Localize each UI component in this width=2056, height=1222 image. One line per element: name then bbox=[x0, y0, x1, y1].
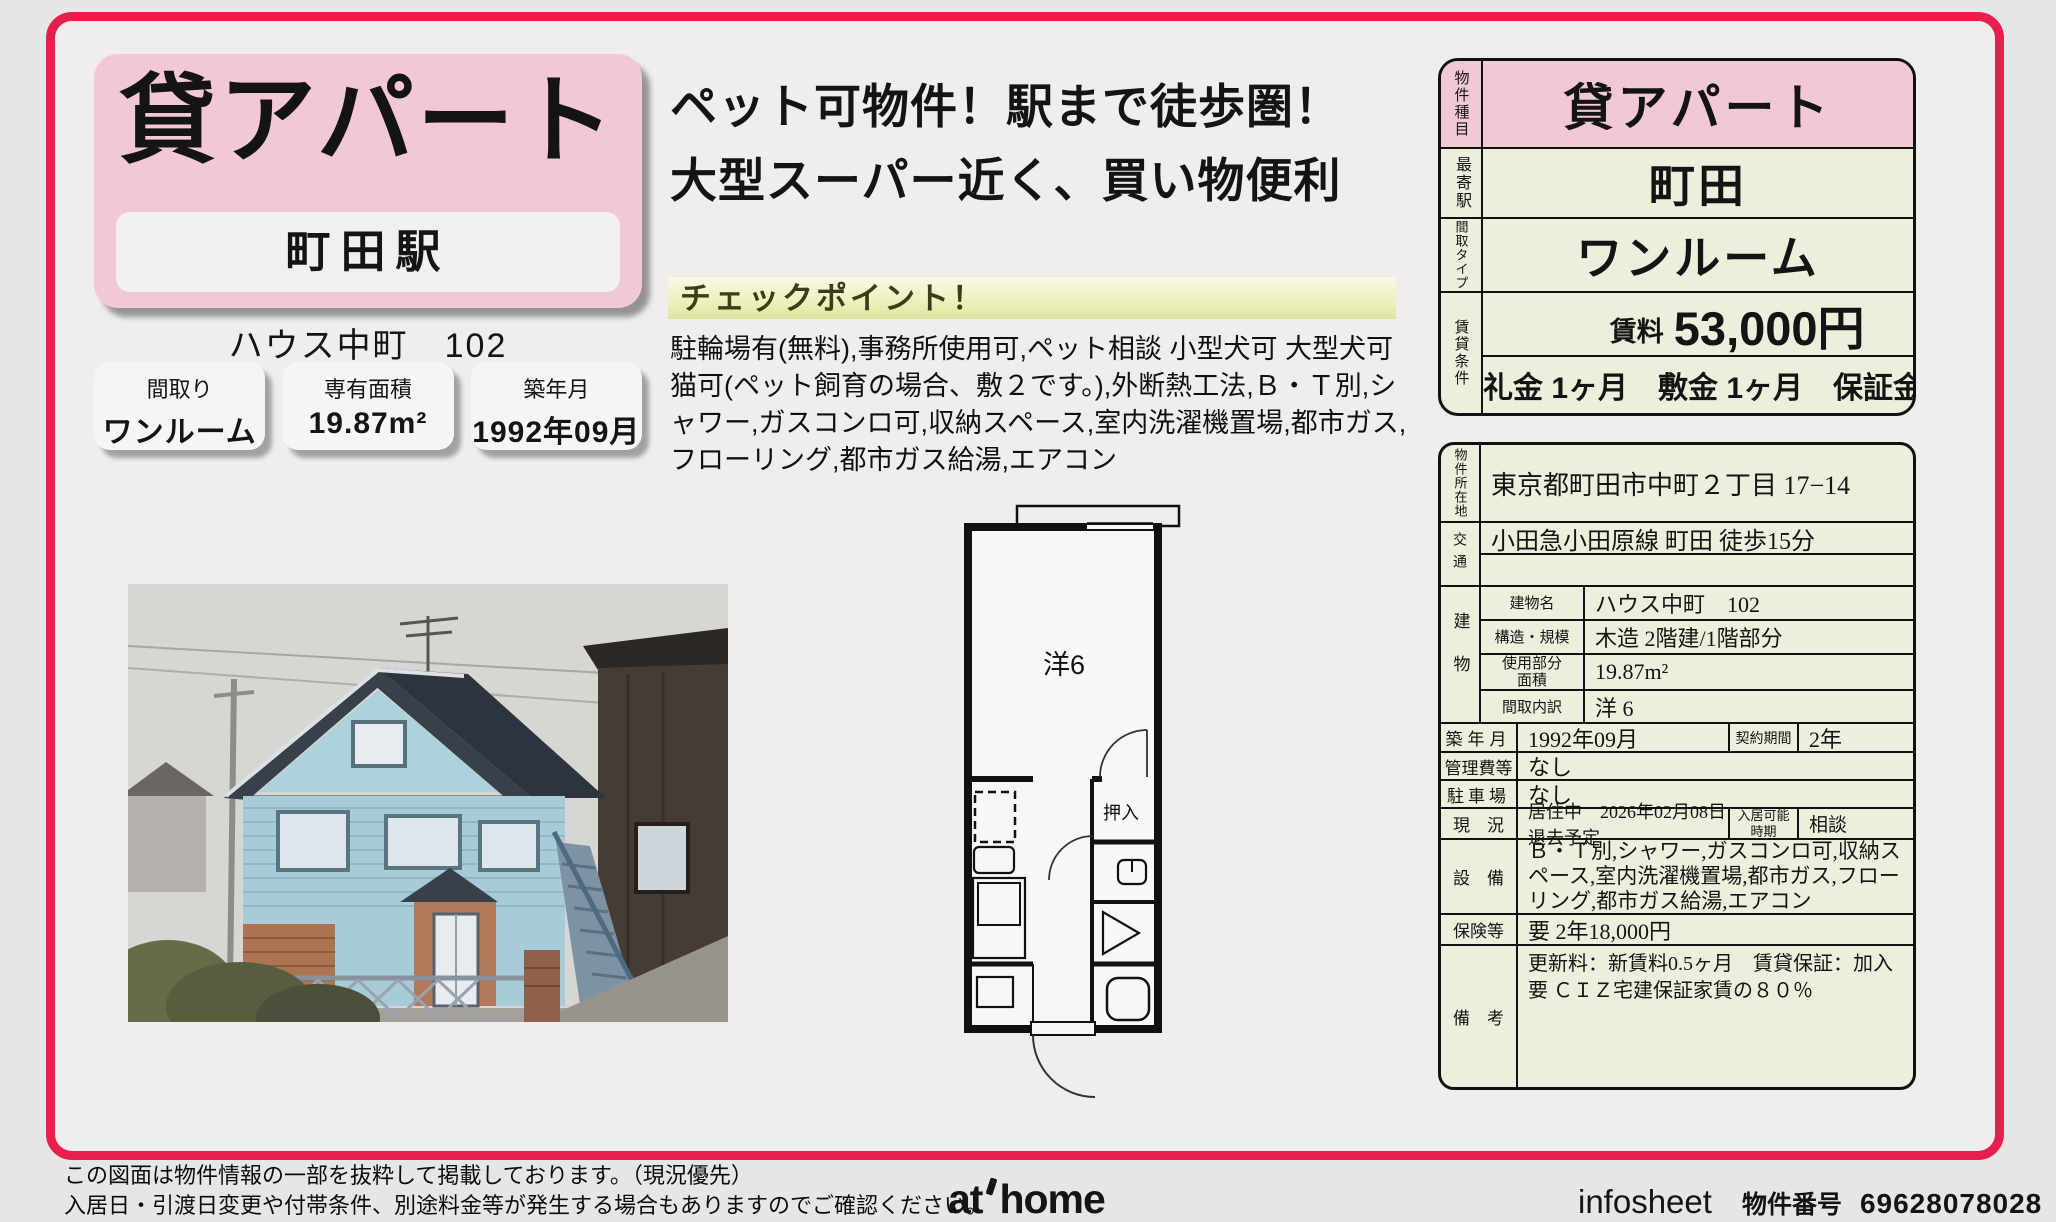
row-value: ハウス中町 102 bbox=[1585, 587, 1913, 619]
feature-description: 駐輪場有(無料),事務所使用可,ペット相談 小型犬可 大型犬可 猫可(ペット飼育… bbox=[670, 331, 1412, 479]
row-label: 物件種目 bbox=[1441, 61, 1483, 147]
row-label: 構造・規模 bbox=[1481, 621, 1585, 653]
row-property-type: 物件種目 貸アパート bbox=[1441, 61, 1913, 149]
exterior-photo bbox=[128, 584, 728, 1022]
stat-label: 間取り bbox=[94, 372, 265, 404]
row-label: 駐車場 bbox=[1441, 781, 1518, 807]
row-label: 賃貸条件 bbox=[1441, 293, 1483, 413]
contract-value: 2年 bbox=[1799, 724, 1913, 751]
athome-logo-at: at bbox=[948, 1176, 982, 1222]
property-number: 物件番号 69628078028 bbox=[1740, 1185, 2048, 1222]
catch-copy: ペット可物件！駅まで徒歩圏！ 大型スーパー近く、買い物便利 bbox=[670, 70, 1342, 218]
row-building-name: 建物名 ハウス中町 102 bbox=[1481, 587, 1913, 621]
footer-disclaimer: この図面は物件情報の一部を抜粋して掲載しております。（現況優先） 入居日・引渡日… bbox=[64, 1161, 988, 1221]
disclaimer-line-2: 入居日・引渡日変更や付帯条件、別途料金等が発生する場合もありますのでご確認くださ… bbox=[64, 1191, 988, 1221]
row-label: 建物名 bbox=[1481, 587, 1585, 619]
rent-label: 賃料 bbox=[1610, 310, 1664, 349]
row-label: 築年月 bbox=[1441, 724, 1518, 751]
row-label: 設 備 bbox=[1441, 840, 1518, 913]
stat-value: 19.87m² bbox=[282, 407, 453, 441]
status-value: 居住中 2026年02月08日退去予定 bbox=[1518, 809, 1728, 838]
row-value: 木造 2階建/1階部分 bbox=[1585, 621, 1913, 653]
contract-label: 契約期間 bbox=[1728, 724, 1799, 751]
row-structure: 構造・規模 木造 2階建/1階部分 bbox=[1481, 621, 1913, 655]
summary-table: 物件種目 貸アパート 最寄駅 町田 間取タイプ ワンルーム 賃貸条件 賃料 53… bbox=[1438, 58, 1916, 416]
row-label: 保険等 bbox=[1441, 915, 1518, 944]
property-flyer: 貸アパート 町田駅 ハウス中町 102 間取り ワンルーム 専有面積 19.87… bbox=[0, 0, 2056, 1222]
row-label: 管理費等 bbox=[1441, 753, 1518, 779]
infosheet-label: infosheet bbox=[1578, 1183, 1712, 1221]
catch-line-2: 大型スーパー近く、買い物便利 bbox=[670, 144, 1342, 218]
rent-value: 53,000円 bbox=[1674, 290, 1865, 359]
row-value: 貸アパート bbox=[1483, 61, 1913, 147]
row-label: 間取内訳 bbox=[1481, 691, 1585, 723]
row-access: 交通 小田急小田原線 町田 徒歩15分 bbox=[1441, 523, 1913, 587]
row-floor-area: 使用部分 面積 19.87m² bbox=[1481, 655, 1913, 691]
athome-logo-tick-icon bbox=[986, 1177, 998, 1195]
equipment-value: Ｂ・Ｔ別,シャワー,ガスコンロ可,収納スペース,室内洗濯機置場,都市ガス,フロー… bbox=[1518, 840, 1913, 913]
row-label: 間取タイプ bbox=[1441, 219, 1483, 291]
row-layout-detail: 間取内訳 洋 6 bbox=[1481, 691, 1913, 723]
row-current-status: 現 況 居住中 2026年02月08日退去予定 入居可能 時期 相談 bbox=[1441, 809, 1913, 840]
stat-value: 1992年09月 bbox=[471, 407, 642, 451]
row-rent-terms: 賃貸条件 賃料 53,000円 礼金 1ヶ月 敷金 1ヶ月 保証金 なし bbox=[1441, 293, 1913, 413]
property-number-label: 物件番号 bbox=[1742, 1185, 1842, 1221]
row-built-date: 築年月 1992年09月 契約期間 2年 bbox=[1441, 724, 1913, 753]
row-layout-type: 間取タイプ ワンルーム bbox=[1441, 219, 1913, 293]
stat-label: 専有面積 bbox=[282, 372, 453, 404]
row-label: 最寄駅 bbox=[1441, 149, 1483, 217]
row-building-group: 建物 建物名 ハウス中町 102 構造・規模 木造 2階建/1階部分 使用部分 … bbox=[1441, 587, 1913, 724]
stat-box-built: 築年月 1992年09月 bbox=[471, 362, 642, 450]
row-label: 交通 bbox=[1441, 523, 1481, 585]
rent-amount: 賃料 53,000円 bbox=[1483, 293, 1916, 357]
stat-value: ワンルーム bbox=[94, 407, 265, 451]
row-nearest-station: 最寄駅 町田 bbox=[1441, 149, 1913, 219]
infosheet-block: infosheet 物件番号 69628078028 bbox=[1578, 1183, 2048, 1222]
stat-label: 築年月 bbox=[471, 372, 642, 404]
building-name: ハウス中町 102 bbox=[94, 318, 642, 367]
row-location: 物件所在地 東京都町田市中町２丁目 17−14 bbox=[1441, 445, 1913, 523]
access-value: 小田急小田原線 町田 徒歩15分 bbox=[1481, 523, 1913, 555]
athome-logo-home: home bbox=[999, 1176, 1104, 1222]
disclaimer-line-1: この図面は物件情報の一部を抜粋して掲載しております。（現況優先） bbox=[64, 1161, 988, 1191]
movein-value: 相談 bbox=[1799, 809, 1913, 838]
row-management-fee: 管理費等 なし bbox=[1441, 753, 1913, 781]
deposit-terms: 礼金 1ヶ月 敷金 1ヶ月 保証金 なし bbox=[1483, 357, 1916, 413]
row-label: 現 況 bbox=[1441, 809, 1518, 838]
location-value: 東京都町田市中町２丁目 17−14 bbox=[1481, 445, 1913, 521]
floorplan-room-label: 洋6 bbox=[1043, 650, 1085, 680]
row-value: 町田 bbox=[1483, 149, 1913, 217]
movein-label: 入居可能 時期 bbox=[1728, 809, 1799, 838]
insurance-value: 要 2年18,000円 bbox=[1518, 915, 1913, 944]
property-type-title: 貸アパート bbox=[94, 54, 642, 175]
fee-value: なし bbox=[1518, 753, 1913, 779]
notes-value: 更新料：新賃料0.5ヶ月 賃貸保証：加入要 ＣＩＺ宅建保証家賃の８０％ bbox=[1518, 946, 1913, 1087]
catch-line-1: ペット可物件！駅まで徒歩圏！ bbox=[670, 70, 1342, 144]
floorplan-closet-label: 押入 bbox=[1103, 803, 1139, 823]
property-type-card: 貸アパート 町田駅 bbox=[94, 54, 642, 308]
property-number-value: 69628078028 bbox=[1860, 1188, 2042, 1220]
row-equipment: 設 備 Ｂ・Ｔ別,シャワー,ガスコンロ可,収納スペース,室内洗濯機置場,都市ガス… bbox=[1441, 840, 1913, 915]
detail-table: 物件所在地 東京都町田市中町２丁目 17−14 交通 小田急小田原線 町田 徒歩… bbox=[1438, 442, 1916, 1090]
built-value: 1992年09月 bbox=[1518, 724, 1728, 751]
row-label: 建物 bbox=[1441, 587, 1481, 722]
stat-boxes: 間取り ワンルーム 専有面積 19.87m² 築年月 1992年09月 bbox=[94, 362, 642, 450]
checkpoint-banner: チェックポイント！ bbox=[668, 277, 1396, 319]
station-name: 町田駅 bbox=[116, 212, 620, 292]
athome-logo: at home bbox=[948, 1176, 1105, 1222]
row-label: 物件所在地 bbox=[1441, 445, 1481, 521]
row-label: 使用部分 面積 bbox=[1481, 655, 1585, 689]
stat-box-layout: 間取り ワンルーム bbox=[94, 362, 265, 450]
access-empty bbox=[1481, 555, 1913, 585]
row-value: ワンルーム bbox=[1483, 219, 1913, 291]
row-label: 備 考 bbox=[1441, 946, 1518, 1087]
floor-plan: 洋6 押入 bbox=[935, 492, 1187, 1104]
stat-box-area: 専有面積 19.87m² bbox=[282, 362, 453, 450]
row-value: 19.87m² bbox=[1585, 655, 1913, 689]
row-insurance: 保険等 要 2年18,000円 bbox=[1441, 915, 1913, 946]
row-value: 洋 6 bbox=[1585, 691, 1913, 723]
row-notes: 備 考 更新料：新賃料0.5ヶ月 賃貸保証：加入要 ＣＩＺ宅建保証家賃の８０％ bbox=[1441, 946, 1913, 1087]
